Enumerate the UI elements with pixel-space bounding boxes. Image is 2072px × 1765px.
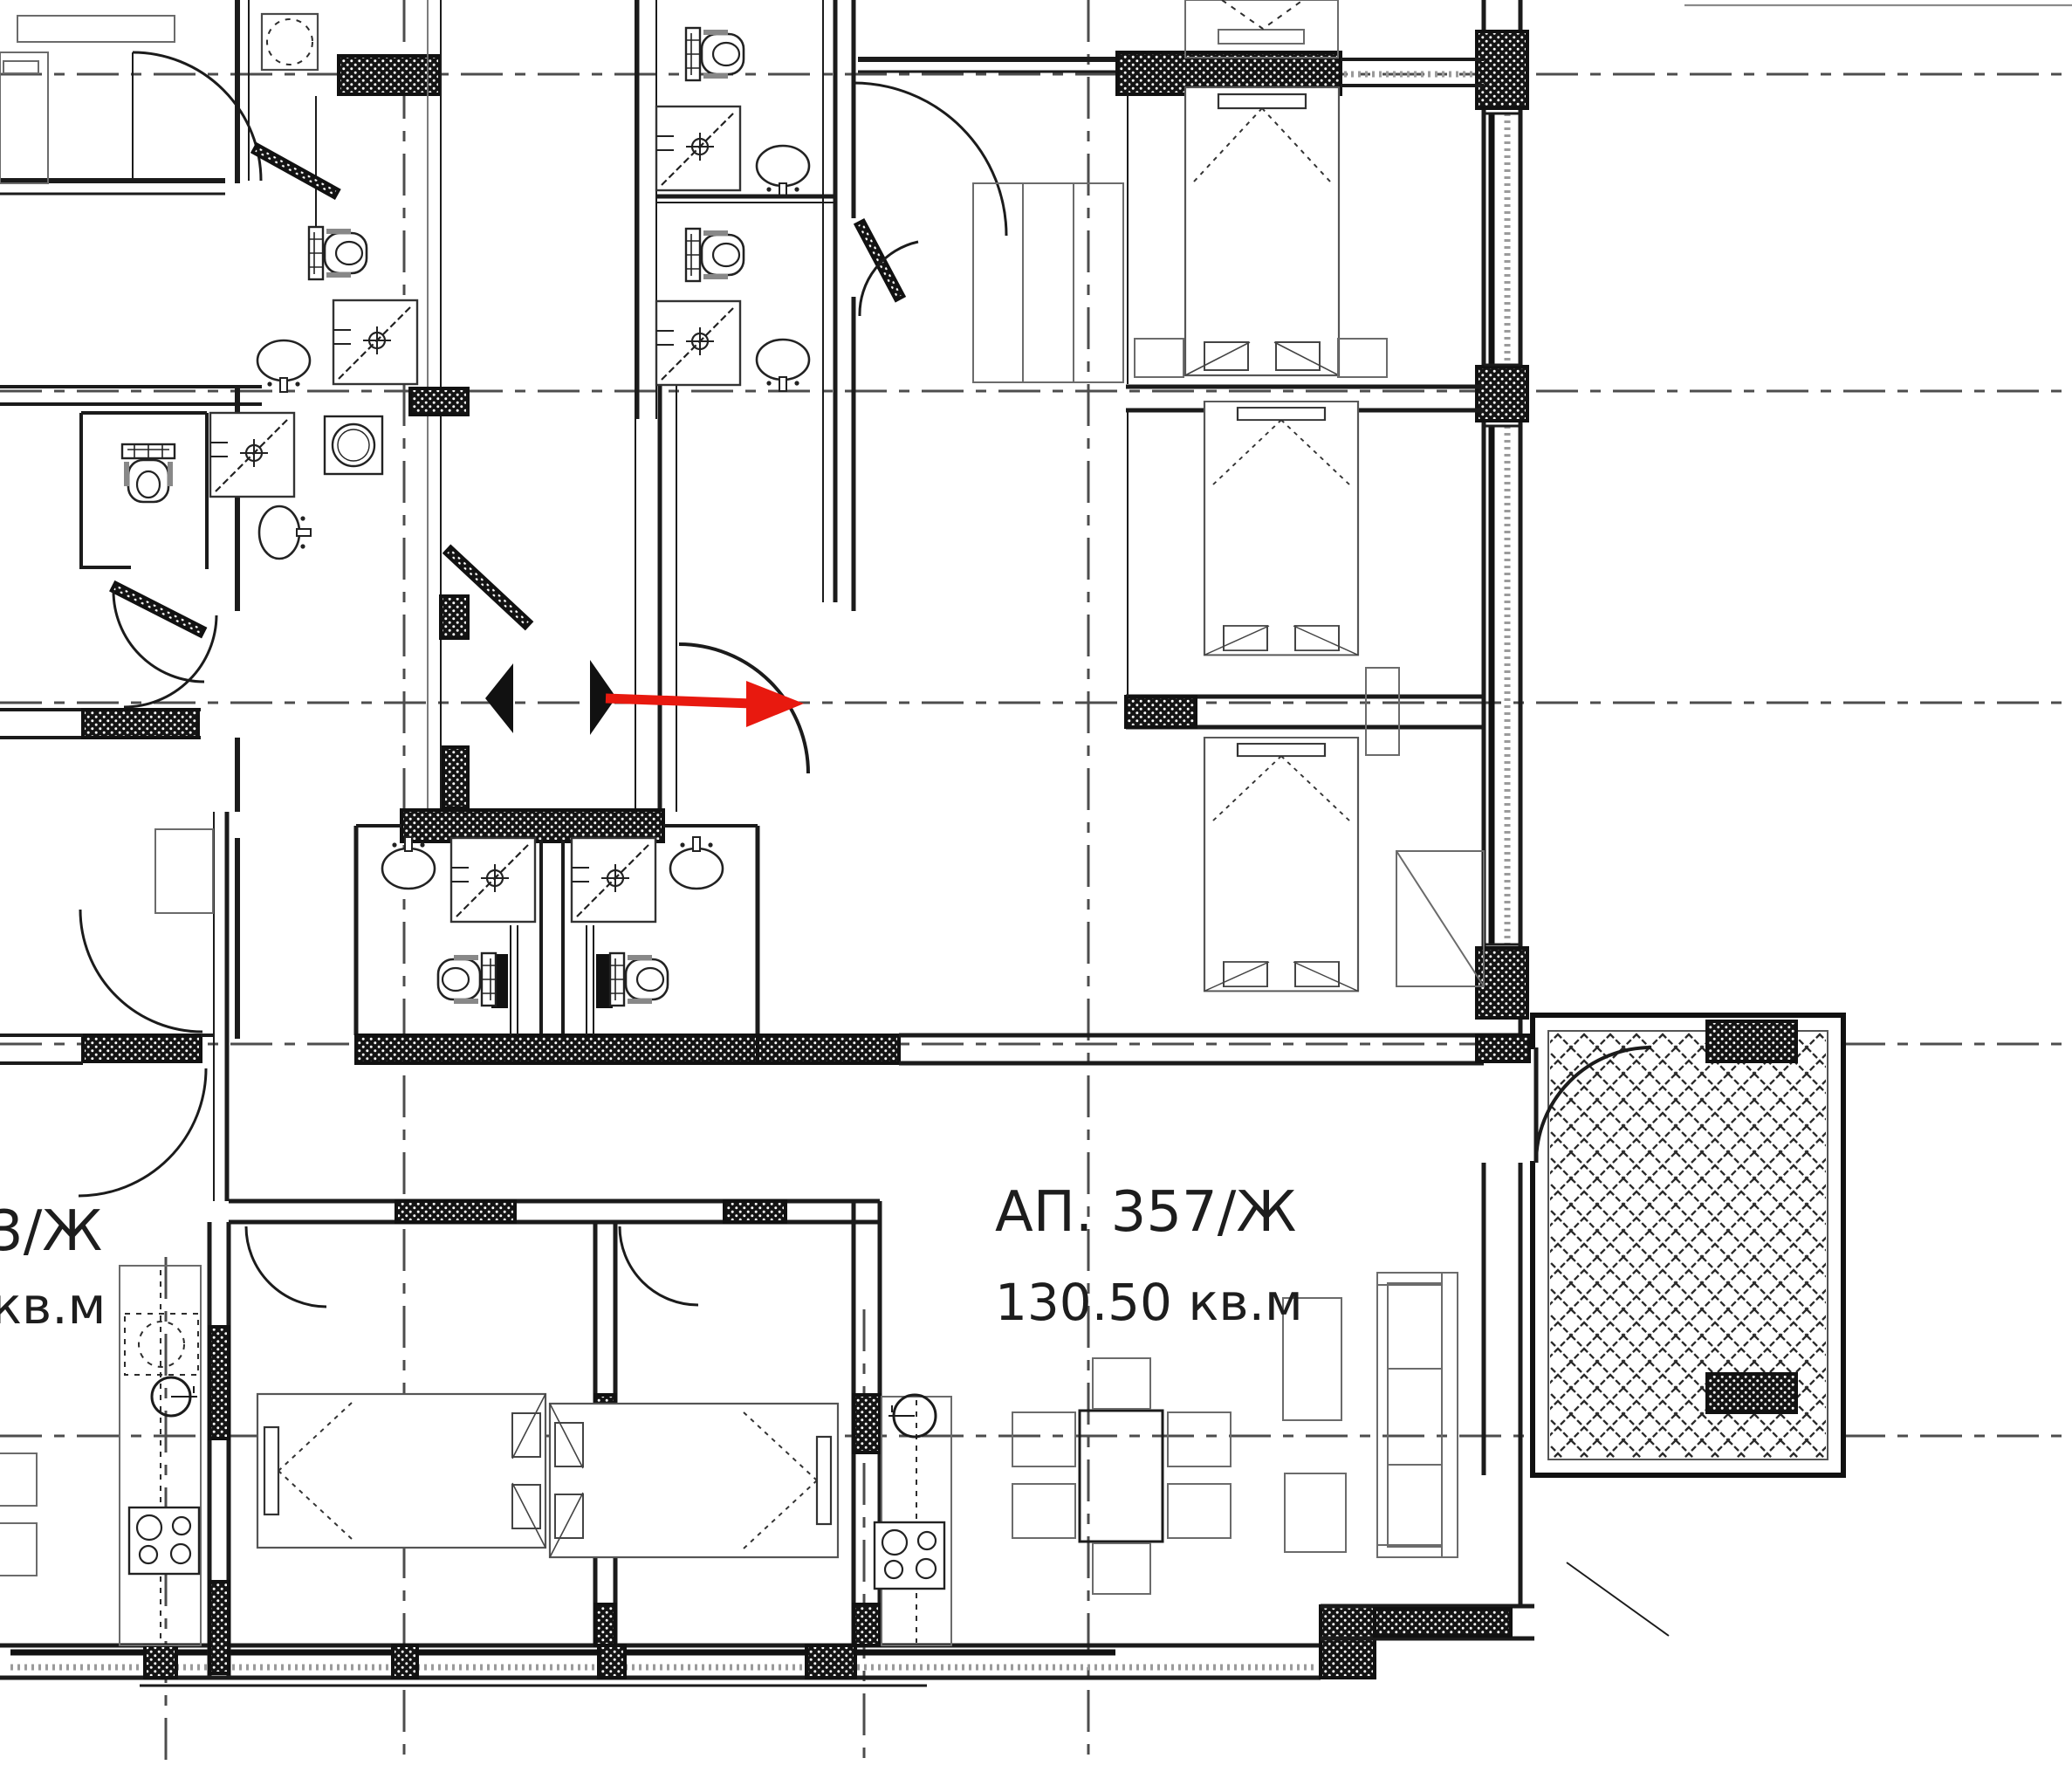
bed-icon [257, 1394, 545, 1548]
shower-icon [656, 301, 740, 385]
wall-hatch-segment [145, 1645, 176, 1678]
bed-icon [1204, 402, 1358, 655]
stove-icon [129, 1507, 199, 1574]
stove-icon [875, 1522, 944, 1589]
wall-hatch-segment [1321, 1606, 1375, 1678]
bed-icon [1185, 87, 1339, 375]
wall-hatch-segment [599, 1645, 625, 1678]
terrace-pillar [1707, 1374, 1796, 1412]
washing-machine-icon [325, 416, 382, 474]
shower-icon [656, 106, 740, 190]
toilet-icon [610, 953, 668, 1006]
wall-hatch-segment [1477, 367, 1527, 421]
terrace [1526, 1015, 1843, 1475]
floor-plan-canvas: АП. 357/Ж 130.50 кв.м 3/Ж кв.м [0, 0, 2072, 1765]
partial-apartment-id-label: 3/Ж [0, 1199, 102, 1264]
apartment-area-label: 130.50 кв.м [995, 1273, 1303, 1332]
bed-icon [550, 1404, 838, 1557]
floor-plan-page: АП. 357/Ж 130.50 кв.м 3/Ж кв.м [0, 0, 2072, 1765]
toilet-icon [686, 28, 744, 80]
toilet-icon [309, 227, 367, 279]
toilet-icon [122, 444, 175, 502]
partial-apartment-area-label: кв.м [0, 1276, 106, 1336]
terrace-pillar [1707, 1021, 1796, 1061]
wall-hatch-segment [1375, 1609, 1511, 1636]
washing-machine-icon [262, 14, 318, 70]
toilet-icon [438, 953, 496, 1006]
shower-icon [572, 838, 655, 922]
wall-hatch-segment [806, 1645, 855, 1678]
toilet-icon [686, 229, 744, 281]
apartment-id-label: АП. 357/Ж [995, 1180, 1296, 1245]
wall-hatch-segment [393, 1645, 417, 1678]
shower-icon [333, 300, 417, 384]
shower-icon [210, 413, 294, 497]
shower-icon [451, 838, 535, 922]
wall-hatch-segment [1477, 31, 1527, 108]
bed-icon [1204, 738, 1358, 991]
